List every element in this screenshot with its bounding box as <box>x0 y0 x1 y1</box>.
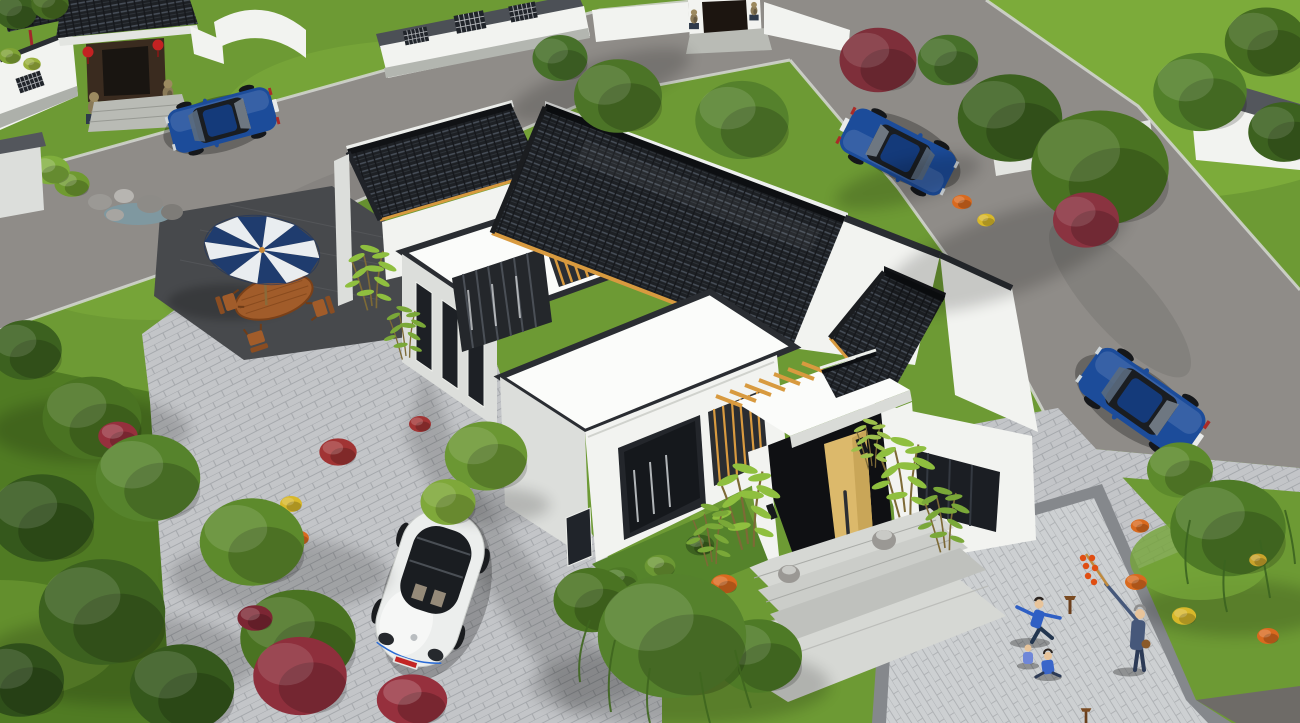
tree <box>695 81 789 159</box>
yellow-flower-bush <box>1249 554 1267 567</box>
red-leaf-tree <box>1053 192 1119 247</box>
tree <box>39 559 166 665</box>
tree <box>574 59 662 133</box>
gatehouse-opening <box>102 46 150 96</box>
scene-rendering <box>0 0 1300 723</box>
red-lantern <box>153 40 164 51</box>
tree <box>421 479 476 525</box>
red-leaf-tree <box>840 28 917 92</box>
red-lantern <box>83 47 94 58</box>
yellow-flower-bush <box>1172 607 1196 625</box>
stone-drum <box>872 530 896 550</box>
crimson-shrub <box>319 438 356 465</box>
rendering-stage <box>0 0 1300 723</box>
orange-flower-bush <box>1125 574 1147 590</box>
tree <box>445 422 528 491</box>
orange-flower-bush <box>952 195 972 209</box>
orange-flower-bush <box>1131 519 1149 532</box>
tree <box>1153 53 1247 131</box>
yellow-flower-bush <box>977 214 995 227</box>
tree <box>96 434 201 521</box>
stone-drum <box>778 565 800 583</box>
tree <box>200 498 305 585</box>
tree <box>533 35 588 81</box>
small-window <box>566 508 592 566</box>
crimson-shrub <box>253 637 347 715</box>
orange-flower-bush <box>1257 628 1279 644</box>
crimson-shrub <box>409 416 431 432</box>
narrow-window <box>442 300 458 389</box>
tree <box>918 35 979 86</box>
satchel <box>1142 640 1151 649</box>
crimson-shrub <box>237 605 272 631</box>
